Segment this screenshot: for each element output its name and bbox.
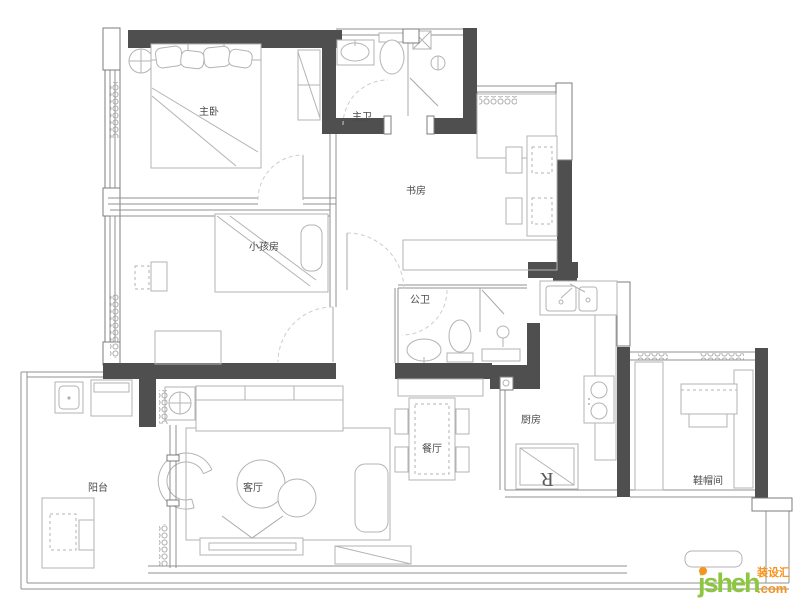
tv xyxy=(209,543,296,550)
entry-threshold xyxy=(752,498,792,511)
living-room: 客厅 xyxy=(149,386,411,568)
armchair xyxy=(149,444,215,514)
master-bedroom: 主卧 xyxy=(129,44,320,168)
room-label-master-bath: 主卫 xyxy=(352,111,372,123)
curtain-coil xyxy=(110,82,119,138)
doorbell xyxy=(500,377,513,390)
pillow xyxy=(203,46,231,69)
toilet-tank xyxy=(447,353,473,362)
room-label-public-bath: 公卫 xyxy=(410,295,430,306)
kids-room: 小孩房 xyxy=(135,214,328,364)
dining-chair xyxy=(456,409,469,434)
toilet xyxy=(380,40,404,74)
curtain-coil xyxy=(700,353,744,360)
bench-drawer xyxy=(689,414,727,427)
door-arc-hallway xyxy=(347,233,404,290)
door-arc-master-bedroom xyxy=(258,155,303,200)
ac-unit xyxy=(685,551,742,567)
kitchen-sink xyxy=(546,286,576,311)
shower-screen xyxy=(410,78,438,106)
room-label-kids-room: 小孩房 xyxy=(249,240,279,253)
floorplan-drawing: 主卧 主卫 书房 小孩房 xyxy=(0,0,800,599)
dining-table xyxy=(409,398,455,480)
room-label-cloakroom: 鞋帽间 xyxy=(693,474,723,487)
public-bath: 公卫 xyxy=(407,288,520,363)
study: 书房 xyxy=(403,136,557,270)
room-label-dining: 餐厅 xyxy=(422,442,442,455)
bath-top-boxes xyxy=(403,29,419,43)
pillow xyxy=(155,45,184,68)
shoe-rack xyxy=(635,362,663,490)
kids-wardrobe xyxy=(155,331,221,364)
curtain-coil xyxy=(159,390,168,424)
door-arc-kids-room xyxy=(278,307,333,362)
sofa xyxy=(196,386,343,431)
exterior-walls xyxy=(21,28,789,589)
pillow xyxy=(180,50,205,70)
master-bath: 主卫 xyxy=(337,31,445,123)
curtain-coil xyxy=(638,353,668,360)
room-label-kitchen: 厨房 xyxy=(521,413,541,426)
watermark-dot xyxy=(699,567,707,575)
desk-chair xyxy=(506,198,522,224)
dining-chair xyxy=(395,409,408,434)
dining: 餐厅 xyxy=(395,377,513,480)
washing-machine xyxy=(91,380,132,416)
dining-chair xyxy=(456,447,469,472)
curtain-coil xyxy=(479,96,517,105)
shower-screen xyxy=(482,290,504,314)
entry-cabinet xyxy=(398,379,483,396)
room-label-balcony: 阳台 xyxy=(88,481,108,494)
curtain-coil xyxy=(110,294,119,358)
floorplan-canvas: 主卧 主卫 书房 小孩房 xyxy=(0,0,800,599)
coffee-table-small xyxy=(278,479,316,517)
watermark: jsheh 装设汇 .com xyxy=(697,565,790,598)
kids-desk xyxy=(151,262,167,291)
kids-chair xyxy=(135,266,149,289)
shower-ledge xyxy=(482,349,520,361)
shower-head xyxy=(497,326,509,338)
toilet xyxy=(449,320,471,352)
room-label-master-bedroom: 主卧 xyxy=(199,105,219,118)
desk-chair xyxy=(506,147,522,173)
balcony: 阳台 xyxy=(42,380,132,568)
curtain-coil xyxy=(159,524,168,566)
room-label-study: 书房 xyxy=(406,184,426,197)
dining-chair xyxy=(395,447,408,472)
fridge-label: R xyxy=(540,468,554,490)
cloakroom: 鞋帽间 xyxy=(635,362,753,567)
cabinet xyxy=(355,464,388,532)
bench xyxy=(681,384,737,414)
room-label-living: 客厅 xyxy=(243,481,263,494)
pillow xyxy=(228,48,253,68)
pillow xyxy=(301,225,322,271)
watermark-suffix: .com xyxy=(757,581,787,596)
watermark-brand: 装设汇 xyxy=(756,565,790,579)
